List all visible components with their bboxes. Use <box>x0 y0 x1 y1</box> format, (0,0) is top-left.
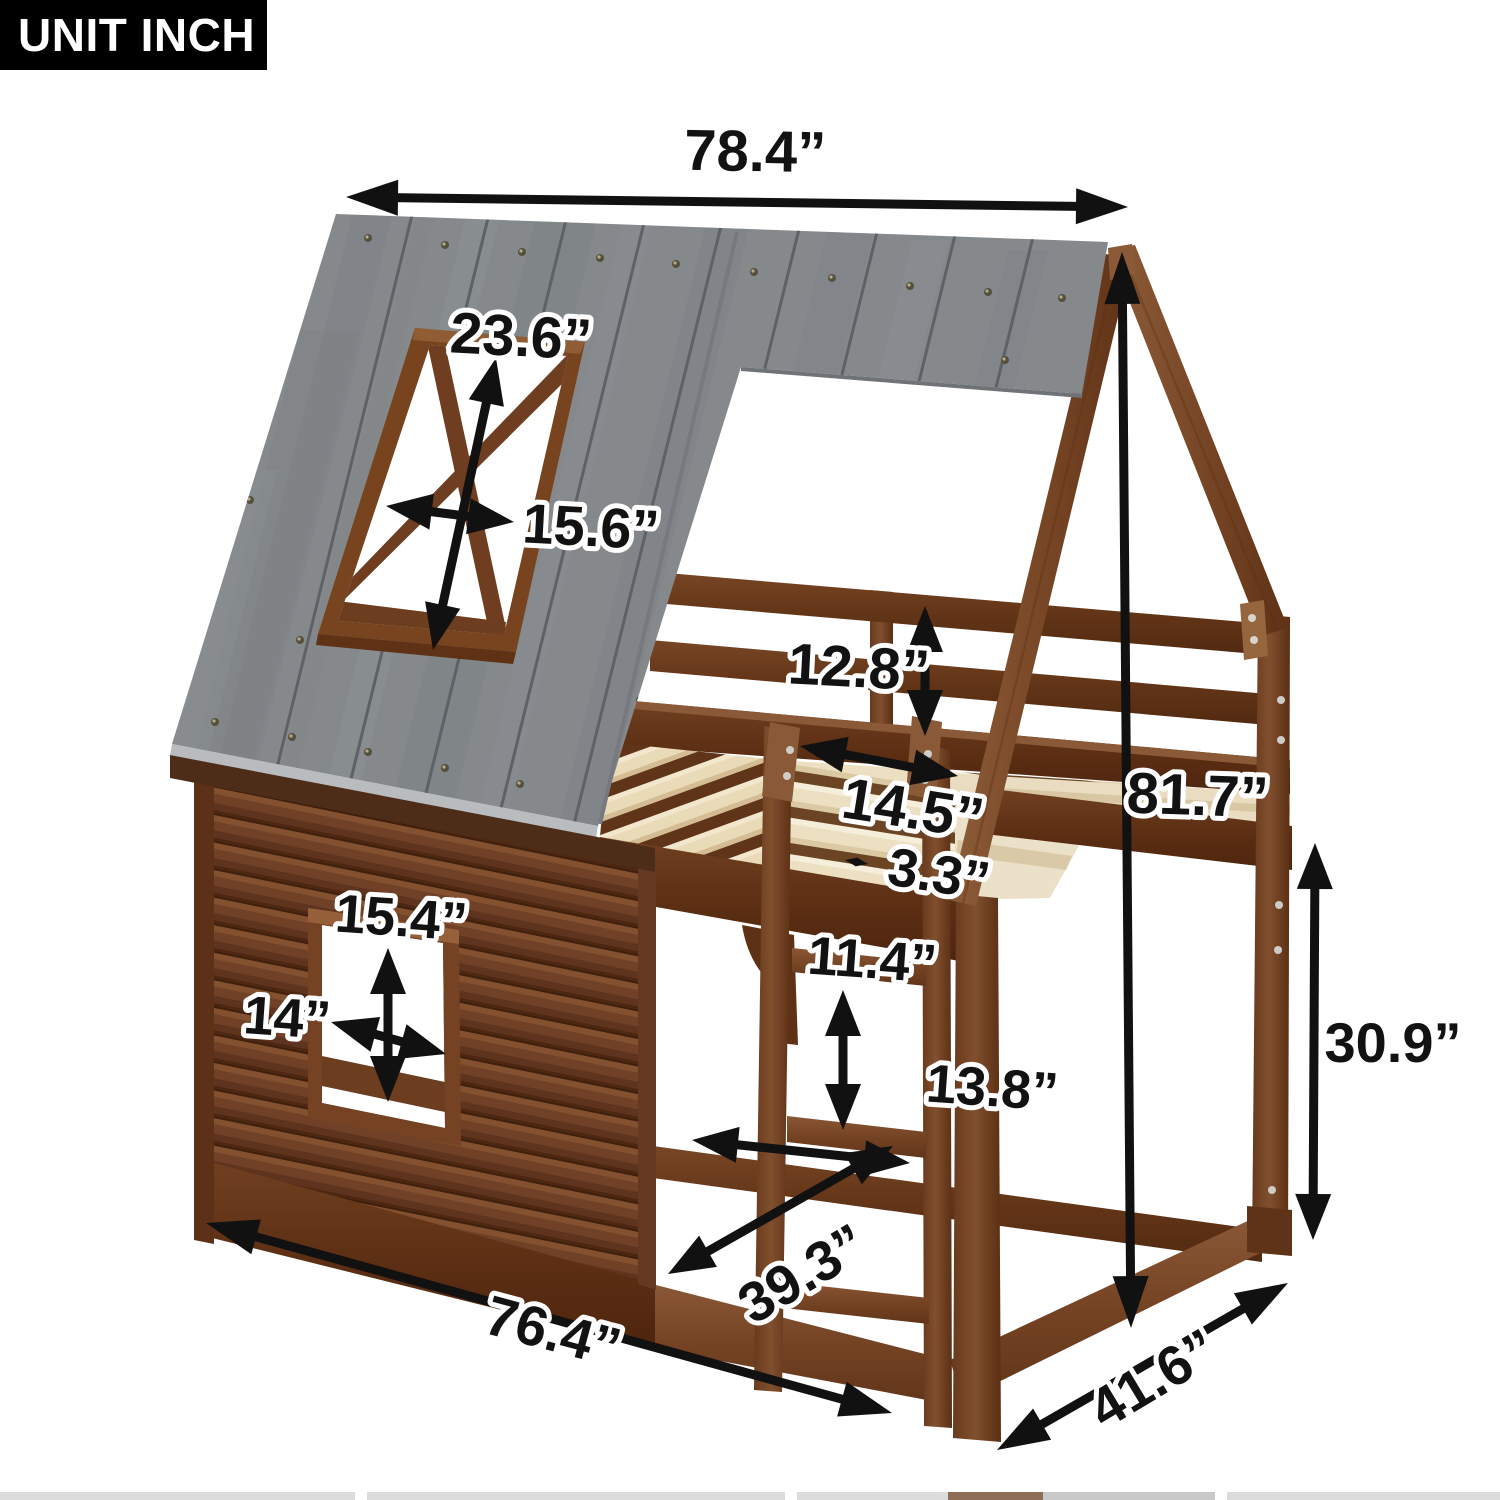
svg-text:23.6”: 23.6” <box>448 300 593 372</box>
svg-text:30.9”: 30.9” <box>1325 1011 1462 1074</box>
svg-text:12.8”: 12.8” <box>786 631 931 703</box>
svg-text:81.7”: 81.7” <box>1126 761 1270 831</box>
svg-text:14”: 14” <box>242 985 333 1051</box>
svg-text:15.4”: 15.4” <box>333 884 469 953</box>
svg-text:78.4”: 78.4” <box>684 118 827 185</box>
svg-text:15.6”: 15.6” <box>521 491 661 561</box>
svg-text:11.4”: 11.4” <box>806 926 939 995</box>
svg-text:13.8”: 13.8” <box>924 1054 1060 1123</box>
svg-text:UNIT INCH: UNIT INCH <box>18 9 255 61</box>
